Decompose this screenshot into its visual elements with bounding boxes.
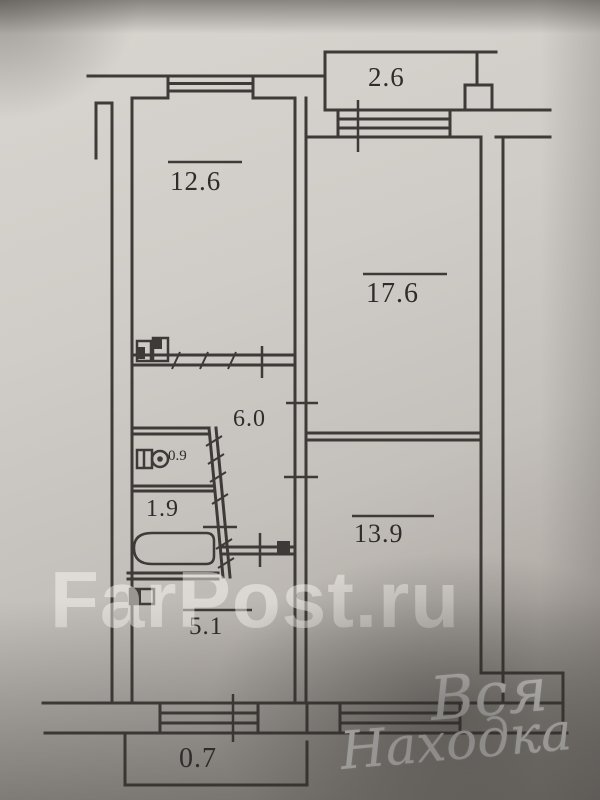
bottom-window-right-frame — [340, 703, 460, 733]
bathroom-right-wall — [209, 428, 230, 577]
bathroom-bottom-wall — [128, 573, 218, 579]
toilet-top-wall — [134, 428, 209, 434]
room-label-balcony-top: 2.6 — [368, 62, 405, 93]
stove-fill — [138, 347, 145, 359]
livingroom-bedroom-wall — [306, 433, 481, 440]
floorplan-photo: 2.6 12.6 17.6 6.0 0.9 1.9 13.9 5.1 0.7 F… — [0, 0, 600, 800]
room-label-toilet: 0.9 — [168, 448, 187, 465]
balcony-window-frame — [338, 110, 450, 137]
bathtub-icon — [134, 533, 214, 564]
toilet-bowl-dot — [157, 456, 163, 462]
room-label-kitchen: 12.6 — [170, 166, 221, 197]
opening-ticks — [203, 100, 358, 742]
bottom-window-left-frame — [160, 703, 258, 733]
balcony-top-outline — [325, 52, 496, 110]
room-label-bedroom: 13.9 — [354, 519, 404, 549]
room-label-balcony-bottom: 0.7 — [179, 743, 217, 775]
electric-panel-fill — [131, 590, 141, 603]
kitchen-window-frame — [168, 76, 253, 98]
walls — [43, 52, 567, 785]
room-label-hallway: 5.1 — [189, 613, 223, 641]
toilet-bath-divider — [134, 486, 214, 491]
balcony-top-pillar — [465, 85, 492, 110]
fixtures — [130, 338, 290, 604]
top-left-neighbor-stub — [96, 103, 112, 158]
room-label-corridor: 6.0 — [233, 406, 266, 433]
central-wall — [295, 98, 306, 703]
door-block — [277, 541, 290, 554]
floorplan-drawing — [0, 0, 600, 800]
sink-fill — [154, 339, 162, 349]
room-label-bathroom: 1.9 — [146, 496, 179, 523]
room-label-living-room: 17.6 — [366, 278, 419, 310]
